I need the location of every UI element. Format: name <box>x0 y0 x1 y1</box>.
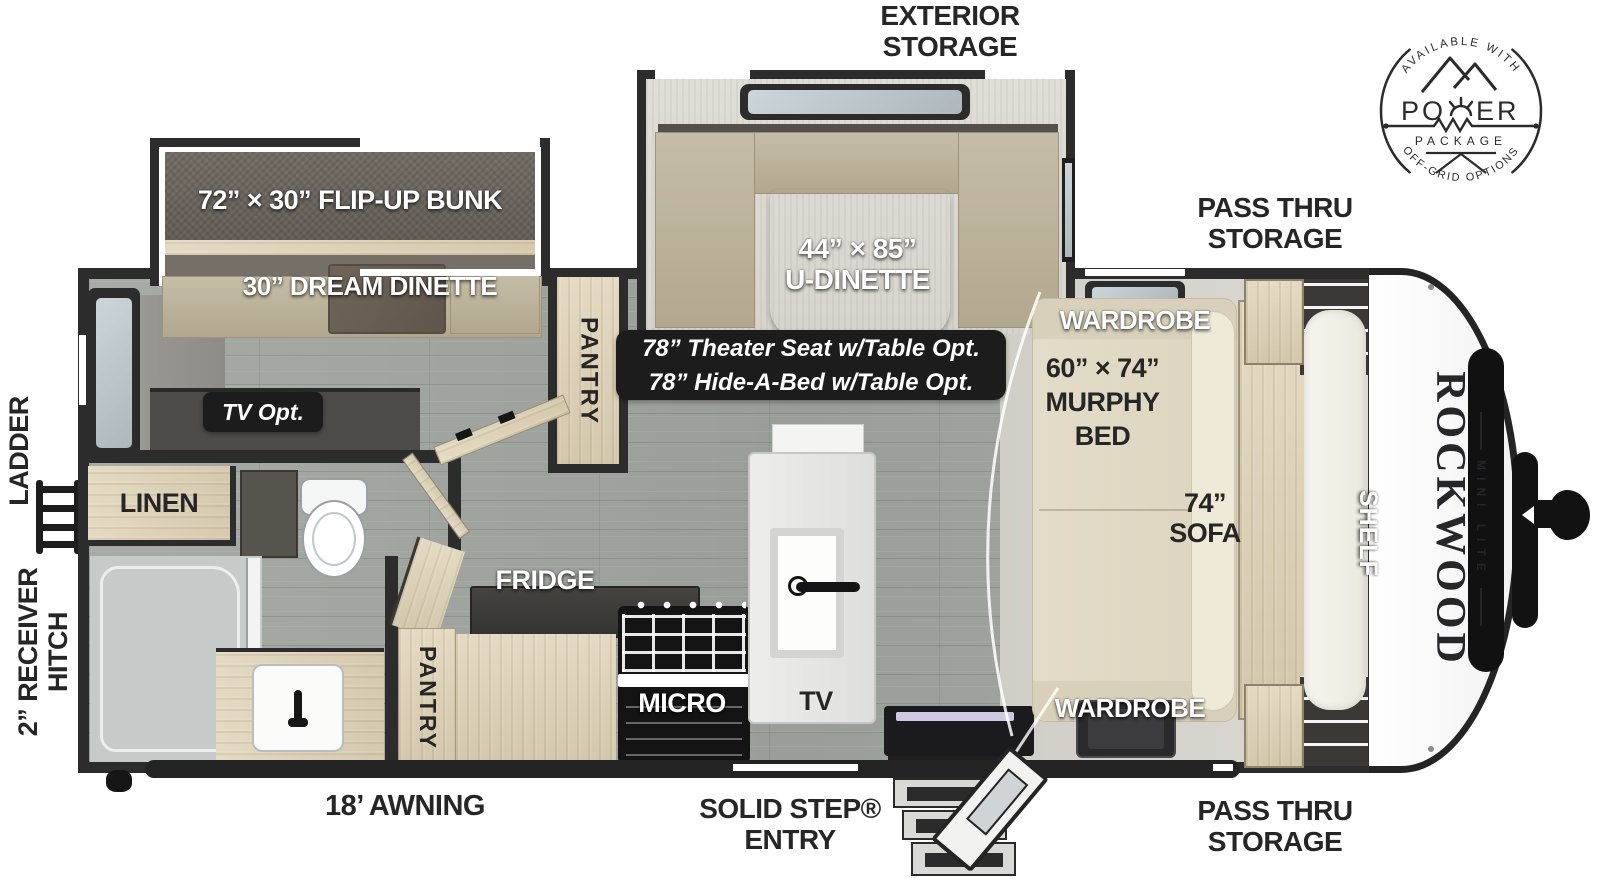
fridge-label: FRIDGE <box>470 565 620 595</box>
murphy-bed-label: 60” × 74” MURPHY BED <box>1015 352 1190 453</box>
cap-rivet <box>1428 746 1434 752</box>
floorplan-canvas: EXTERIOR STORAGE PASS THRU STORAGE LADDE… <box>0 0 1600 888</box>
murphy-line1: MURPHY <box>1015 386 1190 420</box>
logo-subtitle: MINI LITE <box>1474 460 1488 578</box>
dream-dinette-label: 30” DREAM DINETTE <box>205 272 535 301</box>
hitch-coupler <box>1512 452 1538 628</box>
sofa-name: SOFA <box>1140 518 1270 548</box>
logo-line <box>1480 412 1482 450</box>
awning-roll <box>145 760 1240 778</box>
cap-rivet <box>1428 284 1434 290</box>
logo-line <box>1480 588 1482 626</box>
murphy-size: 60” × 74” <box>1015 352 1190 386</box>
micro-label: MICRO <box>612 688 752 718</box>
tv-label: TV <box>786 686 846 716</box>
murphy-line2: BED <box>1015 420 1190 454</box>
bottom-wall-strip-b <box>1213 764 1233 771</box>
left-wall-strip <box>79 335 86 405</box>
sofa-size: 74” <box>1140 488 1270 518</box>
rockwood-logo: MINI LITE ROCKWOOD <box>1411 354 1489 684</box>
logo-sub-row: MINI LITE <box>1473 354 1489 684</box>
shelf-label: SHELF <box>1352 468 1382 598</box>
wardrobe-bottom-label: WARDROBE <box>1030 694 1230 723</box>
entry-steps <box>880 770 1040 888</box>
sofa-label: 74” SOFA <box>1140 488 1270 548</box>
top-wall-strip-b <box>1085 269 1185 276</box>
rear-stabilizer <box>106 770 132 792</box>
logo-title: ROCKWOOD <box>1427 354 1473 684</box>
swing-arcs <box>0 0 1600 888</box>
wardrobe-top-label: WARDROBE <box>1035 306 1235 335</box>
bottom-wall-strip-a <box>733 764 858 771</box>
